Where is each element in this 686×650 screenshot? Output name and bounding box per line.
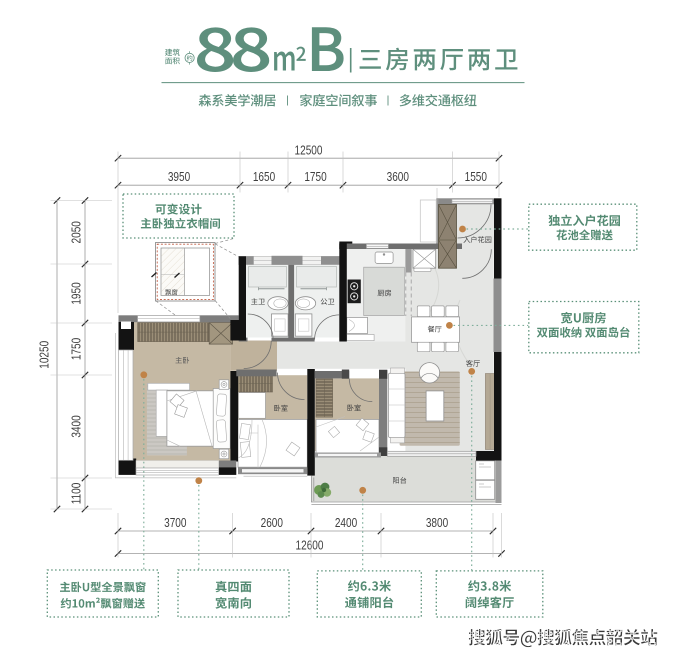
svg-text:3700: 3700 [164, 517, 186, 530]
svg-text:1550: 1550 [465, 171, 487, 184]
svg-text:1750: 1750 [70, 338, 83, 360]
svg-text:10250: 10250 [38, 341, 51, 369]
svg-text:3600: 3600 [387, 171, 409, 184]
svg-text:12600: 12600 [296, 539, 324, 552]
svg-text:12500: 12500 [295, 144, 323, 157]
svg-text:3800: 3800 [426, 517, 448, 530]
svg-text:1950: 1950 [70, 282, 83, 304]
svg-text:1650: 1650 [253, 171, 275, 184]
svg-text:2050: 2050 [70, 221, 83, 243]
svg-text:2400: 2400 [335, 517, 357, 530]
svg-text:1100: 1100 [70, 483, 83, 505]
svg-text:1750: 1750 [304, 171, 326, 184]
svg-text:3950: 3950 [168, 171, 190, 184]
svg-text:3400: 3400 [70, 415, 83, 437]
svg-text:2600: 2600 [261, 517, 283, 530]
